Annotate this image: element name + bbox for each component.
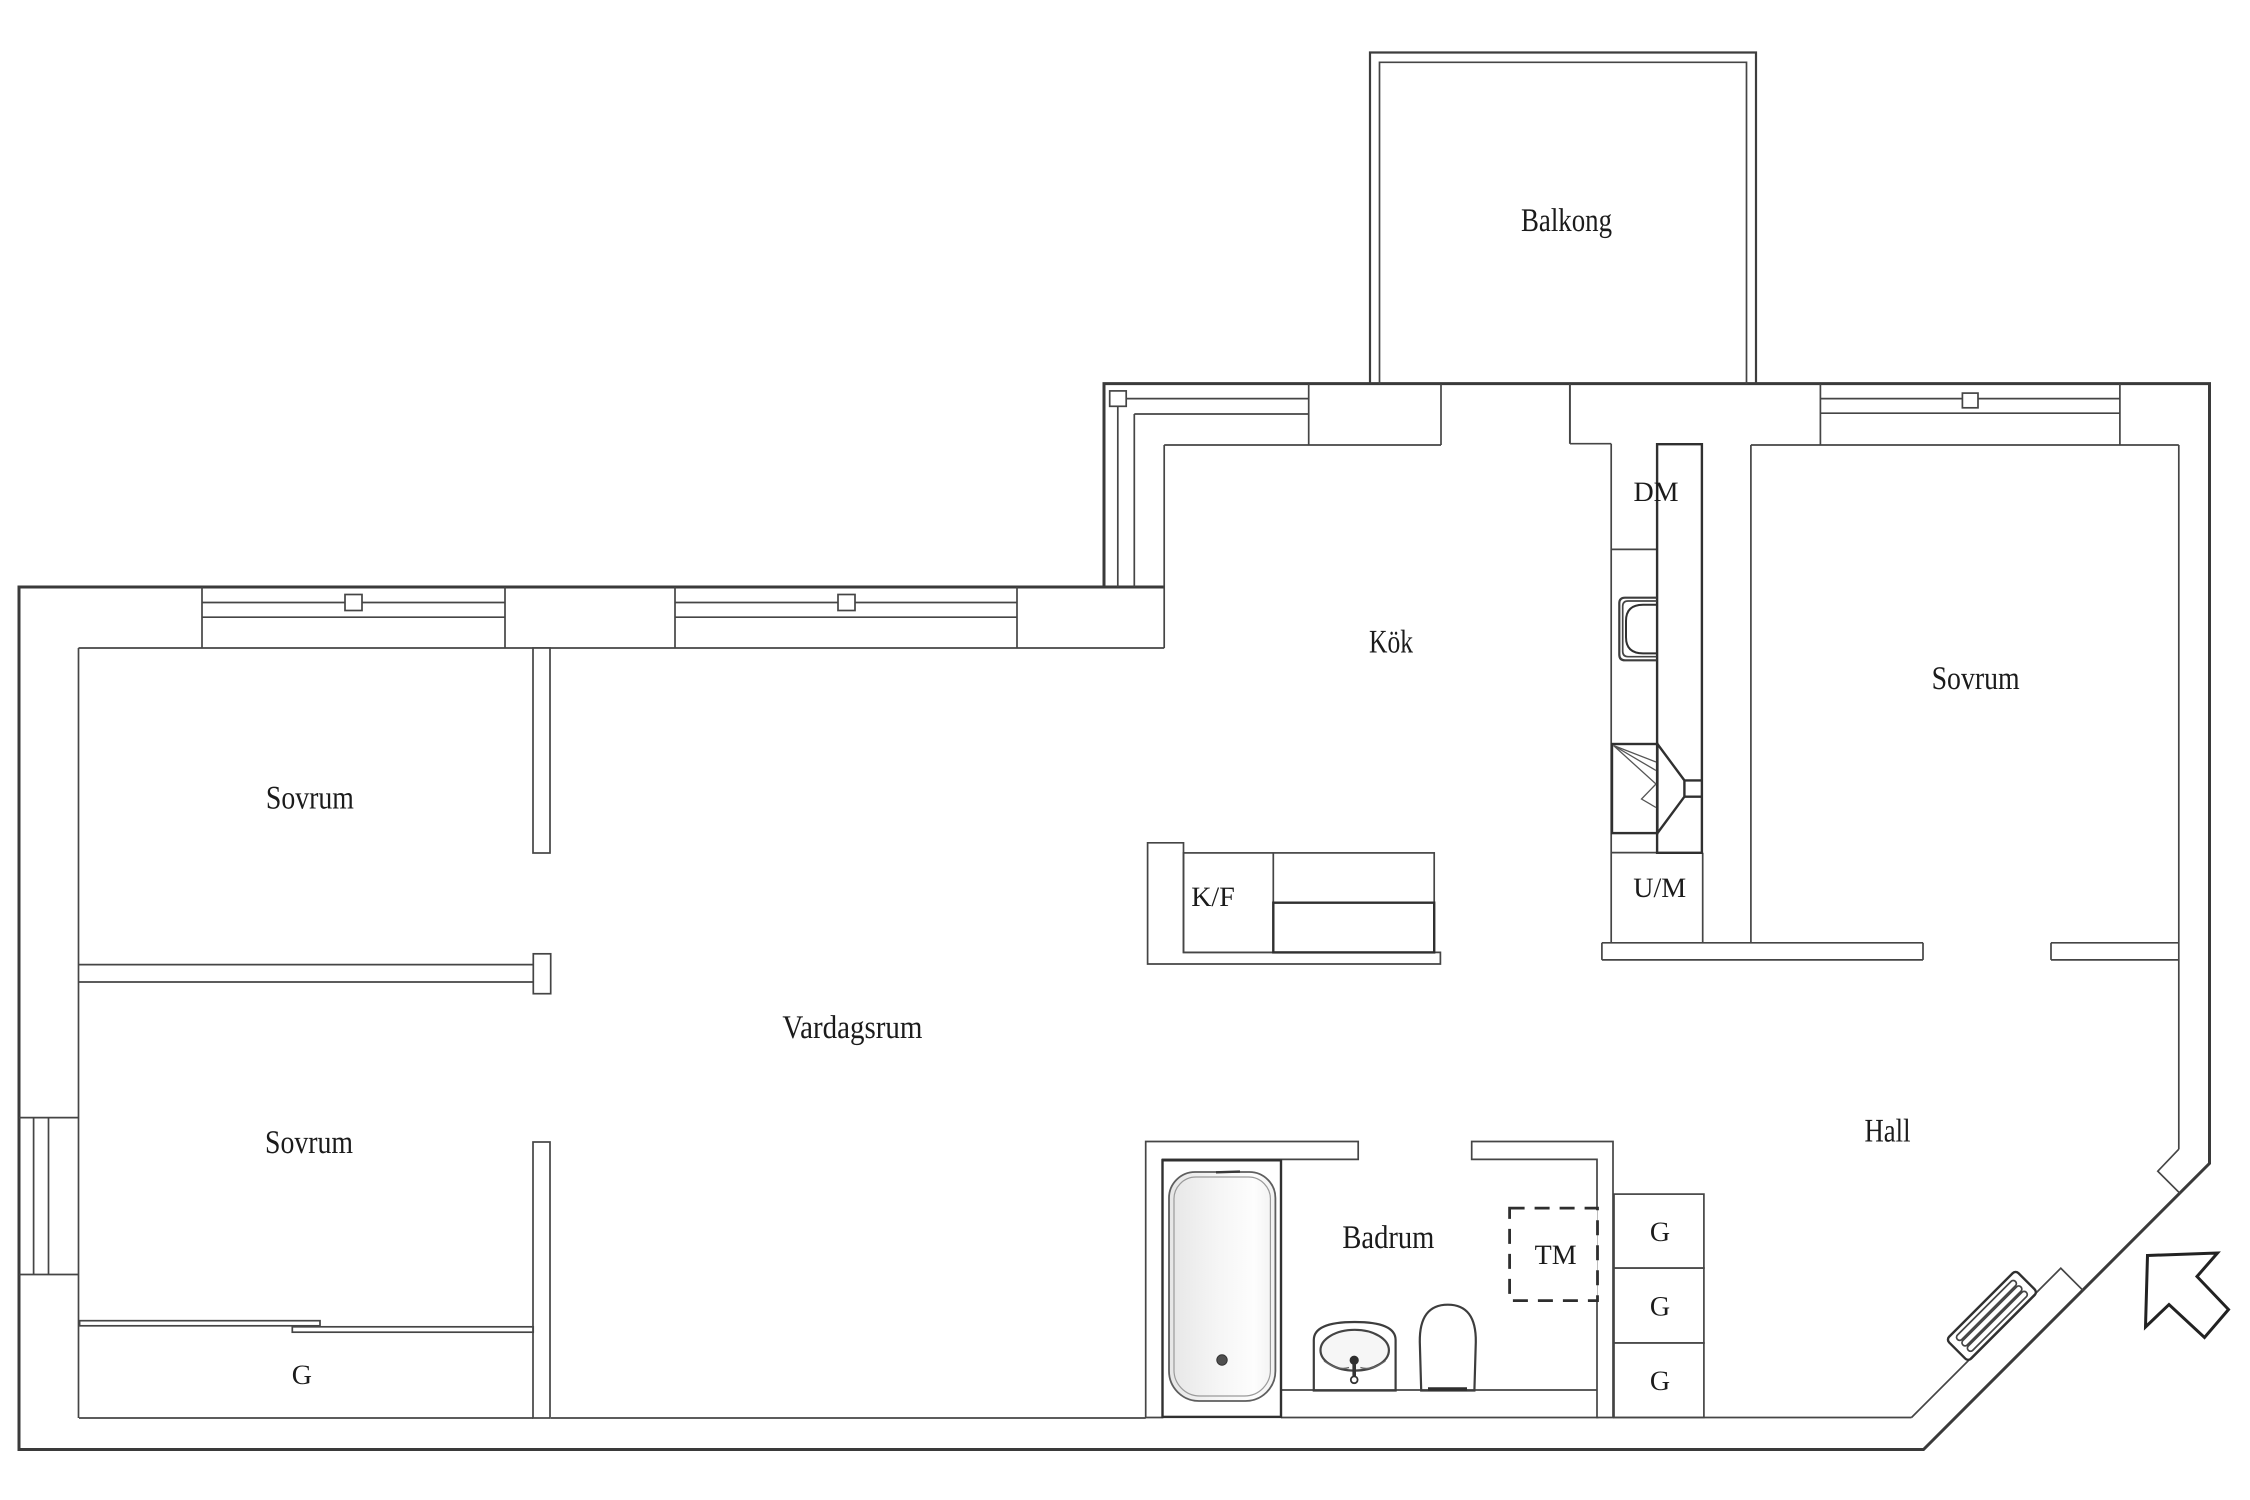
svg-text:Badrum: Badrum [1342,1220,1434,1256]
svg-text:Hall: Hall [1865,1113,1911,1149]
svg-text:Balkong: Balkong [1521,203,1612,239]
svg-text:G: G [292,1360,312,1391]
svg-text:G: G [1650,1366,1670,1397]
svg-text:Vardagsrum: Vardagsrum [782,1010,922,1046]
svg-text:K/F: K/F [1191,882,1235,913]
svg-text:Kök: Kök [1369,625,1413,661]
svg-text:Sovrum: Sovrum [266,780,354,816]
svg-text:TM: TM [1535,1240,1577,1271]
svg-text:DM: DM [1633,477,1678,508]
svg-text:U/M: U/M [1633,873,1686,904]
svg-text:Sovrum: Sovrum [265,1125,353,1161]
svg-text:G: G [1650,1292,1670,1323]
svg-text:G: G [1650,1217,1670,1248]
svg-text:Sovrum: Sovrum [1932,661,2020,697]
